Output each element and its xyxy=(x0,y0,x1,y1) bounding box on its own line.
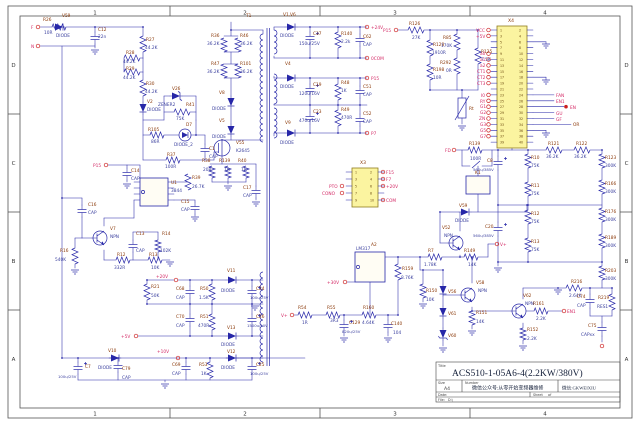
component-label: V7 xyxy=(110,226,116,232)
component-label: 44.2K xyxy=(145,89,158,95)
component-label: C62 xyxy=(363,34,372,40)
component-label: V9 xyxy=(285,120,291,126)
component-label: NPN xyxy=(110,234,119,240)
file-value: D:\ xyxy=(448,398,454,402)
net-port-label: V+ xyxy=(281,313,288,319)
component-label: CAP xyxy=(122,375,131,381)
component-label: 8.76K xyxy=(401,275,414,281)
component-label: R46 xyxy=(240,33,249,39)
component-label: 75K xyxy=(531,247,539,253)
component-label: CAPxx xyxy=(581,332,595,338)
component-label: A2 xyxy=(371,242,377,248)
component-label: CAP xyxy=(577,303,586,309)
component-label: 470R xyxy=(341,115,352,121)
component-label: 0R xyxy=(446,68,452,74)
pin-number: 33 xyxy=(500,123,504,127)
component-label: CAP xyxy=(363,119,372,125)
component-label: DIODE xyxy=(147,107,161,113)
component-label: 2.2K xyxy=(527,336,537,342)
component-label: R50 xyxy=(200,286,209,292)
component-label: R13 xyxy=(531,239,540,245)
contact-value: 微信:GKWEIXIU xyxy=(562,385,597,392)
component-label: U1 xyxy=(171,180,177,186)
component-label: R16 xyxy=(60,248,69,254)
component-label: 22n xyxy=(98,34,106,40)
number-value: 微信公众号:从零开始变频器维修 xyxy=(472,385,543,392)
component-label: R47 xyxy=(211,61,220,67)
net-port-label: CT3 xyxy=(477,81,486,87)
net-port-label: N xyxy=(31,44,34,50)
component-label: R139 xyxy=(469,141,480,147)
pin-number: 40 xyxy=(519,141,523,145)
zone-col-label: 3 xyxy=(393,412,397,418)
component-label: R140 xyxy=(341,31,352,37)
pin-number: 12 xyxy=(519,58,523,62)
component-label: C13 xyxy=(136,231,145,237)
component-label: V4 xyxy=(285,61,291,67)
pin-number: 11 xyxy=(500,58,504,62)
component-label: 100R xyxy=(470,156,481,162)
component-label: C16 xyxy=(88,202,97,208)
component-label: C12 xyxy=(98,27,107,33)
component-label: R28 xyxy=(126,50,135,56)
component-label: 36.2K xyxy=(207,41,220,47)
component-label: R198 xyxy=(433,67,444,73)
component-label: C75 xyxy=(588,323,597,329)
component-label: 3R3 xyxy=(330,318,339,324)
component-label: R149 xyxy=(464,248,475,254)
component-label: DIODE xyxy=(280,140,294,146)
file-label: File: xyxy=(438,398,445,402)
component-label: C14 xyxy=(131,168,140,174)
schematic-page: X412345678910111213141516171819202122232… xyxy=(0,0,640,424)
net-port-label: VCC xyxy=(476,28,485,34)
net-port-label: V+ xyxy=(500,242,507,248)
component-label: V8 xyxy=(219,90,225,96)
component-label: 44.2K xyxy=(123,59,136,65)
net-port-label: +5V xyxy=(476,34,485,40)
component-label: CAP xyxy=(88,210,97,216)
component-label: C79 xyxy=(122,366,131,372)
component-label: R105 xyxy=(148,127,159,133)
component-label: 100u/25V xyxy=(58,374,77,379)
component-label: 100u/25V xyxy=(250,371,269,376)
net-port-label: G7 xyxy=(480,134,486,140)
pin-number: 24 xyxy=(519,93,523,97)
pin-number: 27 xyxy=(500,105,504,109)
component-label: 4.64K xyxy=(362,320,375,326)
component-label: C129 xyxy=(349,320,360,326)
component-label: CAP xyxy=(243,193,252,199)
net-port-label: G2 xyxy=(480,110,486,116)
component-label: R48 xyxy=(341,80,350,86)
component-label: 86R xyxy=(151,139,159,145)
component-label: V56 xyxy=(448,289,457,295)
component-label: V13 xyxy=(227,325,236,331)
component-label: C68 xyxy=(176,286,185,292)
pin-number: 8 xyxy=(519,46,521,50)
component-label: R12 xyxy=(531,211,540,217)
pin-number: 1 xyxy=(355,171,357,175)
date-label: Date: xyxy=(438,393,447,397)
component-label: R12 xyxy=(117,252,126,258)
component-label: C140 xyxy=(391,321,402,327)
component-label: DIODE xyxy=(280,84,294,90)
component-label: 36.2K xyxy=(546,154,559,160)
component-label: DIODE xyxy=(455,218,469,224)
component-label: V60 xyxy=(448,333,457,339)
component-label: R292 xyxy=(440,60,451,66)
net-port-label: 0COM xyxy=(371,56,384,62)
component-label: R176 xyxy=(605,209,616,215)
component-label: 2.2k xyxy=(341,39,351,45)
pin-number: 23 xyxy=(500,93,504,97)
component-label: K1 xyxy=(475,170,481,176)
component-label: NPN xyxy=(478,288,487,294)
component-label: V58 xyxy=(476,280,485,286)
component-label: R49 xyxy=(341,107,350,113)
component-label: 300K xyxy=(605,243,616,249)
component-label: R123 xyxy=(605,155,616,161)
net-port-label: GU xyxy=(556,111,562,117)
component-label: 10R xyxy=(44,30,52,36)
component-label: 36.2K xyxy=(574,154,587,160)
component-label: 1K xyxy=(201,371,207,377)
component-label: R53 xyxy=(199,362,208,368)
component-label: CAP xyxy=(131,176,140,182)
size-value: A4 xyxy=(444,386,450,392)
zone-row-label: C xyxy=(12,161,16,167)
connector-name: X3 xyxy=(360,160,366,166)
component-label: Rt xyxy=(469,106,474,112)
component-label: R189 xyxy=(605,235,616,241)
of-label: of xyxy=(548,393,552,397)
component-label: DIODE xyxy=(56,33,70,39)
pin-number: 37 xyxy=(500,135,504,139)
component-label: R27 xyxy=(146,37,155,43)
pin-number: 15 xyxy=(500,70,504,74)
pin-number: 28 xyxy=(519,105,523,109)
component-label: R122 xyxy=(576,141,587,147)
component-label: C52 xyxy=(363,111,372,117)
component-label: 27K xyxy=(412,35,420,41)
net-port-label: G3 xyxy=(480,122,486,128)
net-port-label: CONO xyxy=(322,191,336,197)
zone-row-label: D xyxy=(624,63,628,69)
component-label: NPN xyxy=(444,233,453,239)
component-label: 1R xyxy=(302,320,308,326)
component-label: K2645 xyxy=(236,148,250,154)
component-label: R21 xyxy=(151,284,160,290)
component-label: R10 xyxy=(531,155,540,161)
component-label: 1910R xyxy=(432,50,446,56)
net-port-label: +5V xyxy=(121,334,130,340)
component-label: C7 xyxy=(85,364,91,370)
component-label: R36 xyxy=(211,33,220,39)
component-label: 300K xyxy=(605,189,616,195)
component-label: C51 xyxy=(363,84,372,90)
component-label: R160 xyxy=(363,305,374,311)
component-label: R39 xyxy=(192,175,201,181)
pin-number: 35 xyxy=(500,129,504,133)
component-label: C19 xyxy=(313,82,322,88)
component-label: 1K xyxy=(341,88,347,94)
component-label: DIODE xyxy=(280,33,294,39)
component-label: V52 xyxy=(442,225,451,231)
component-label: R26 xyxy=(43,17,52,23)
pin-number: 20 xyxy=(519,82,523,86)
component-label: 104 xyxy=(393,330,401,336)
net-port-label: CT1 xyxy=(477,69,486,75)
net-port-label: a1 xyxy=(480,57,486,63)
pin-number: 18 xyxy=(519,76,523,80)
component-label: C26 xyxy=(256,314,265,320)
pin-number: 1 xyxy=(500,29,502,33)
pin-number: 9 xyxy=(355,199,357,203)
component-label: 1.5K xyxy=(199,295,209,301)
pin-number: 38 xyxy=(519,135,523,139)
component-label: C17 xyxy=(243,185,252,191)
component-label: V55 xyxy=(236,140,245,146)
net-port-label: +20V xyxy=(386,184,398,190)
net-port-label: FD xyxy=(445,148,451,154)
component-label: V61 xyxy=(448,311,457,317)
net-port-label: +20V xyxy=(156,274,168,280)
component-label: R14 xyxy=(162,231,171,237)
component-label: 10R xyxy=(433,75,441,81)
component-label: 102K xyxy=(160,248,171,254)
net-port-label: +30V xyxy=(327,280,339,286)
pin-number: 3 xyxy=(355,178,357,182)
pin-number: 9 xyxy=(500,52,502,56)
zone-row-label: C xyxy=(625,161,629,167)
pin-number: 14 xyxy=(519,64,523,68)
component-label: 3844 xyxy=(171,188,182,194)
net-port-label: F7 xyxy=(386,177,391,183)
component-label: R7 xyxy=(428,248,434,254)
component-label: 560u/385V xyxy=(473,233,494,238)
component-label: 300K xyxy=(605,163,616,169)
zone-row-label: A xyxy=(625,357,629,363)
pin-number: 17 xyxy=(500,76,504,80)
pin-number: 31 xyxy=(500,117,504,121)
component-label: 36.2K xyxy=(207,69,220,75)
component-label: 100u/25V xyxy=(250,295,269,300)
component-label: CAP xyxy=(136,248,145,254)
net-port-label: G1 xyxy=(480,104,486,110)
pin-number: 4 xyxy=(519,34,521,38)
component-label: R101 xyxy=(240,61,251,67)
pin-number: 34 xyxy=(519,123,523,127)
component-label: C70 xyxy=(176,314,185,320)
pin-number: 16 xyxy=(519,70,523,74)
component-label: OR xyxy=(573,122,579,128)
component-label: 36.2K xyxy=(240,69,253,75)
net-port-label: GF xyxy=(556,117,562,123)
component-label: C25 xyxy=(256,362,265,368)
component-label: CAP xyxy=(363,92,372,98)
component-label: V59 xyxy=(62,13,71,19)
component-label: R121 xyxy=(548,141,559,147)
pin-number: 2 xyxy=(519,29,521,33)
component-label: LM317 xyxy=(356,246,371,252)
component-label: R219 xyxy=(598,295,609,301)
component-label: 44.2K xyxy=(123,75,136,81)
component-label: C1 xyxy=(209,146,215,152)
pin-number: 6 xyxy=(519,40,521,44)
component-label: R166 xyxy=(605,181,616,187)
sheet-label: Sheet xyxy=(533,393,543,397)
pin-number: 39 xyxy=(500,141,504,145)
component-label: R30 xyxy=(146,81,155,87)
component-label: R216 xyxy=(571,279,582,285)
net-port-label: ZN xyxy=(479,116,485,122)
pin-number: 36 xyxy=(519,129,523,133)
component-label: 44.2K xyxy=(145,45,158,51)
component-label: DIODE_2 xyxy=(174,142,193,148)
component-label: R41 xyxy=(186,102,195,108)
pin-number: 2 xyxy=(370,171,372,175)
component-label: R54 xyxy=(298,305,307,311)
component-label: DIODE xyxy=(221,288,235,294)
net-port-label: CT2 xyxy=(477,75,486,81)
component-label: CAP xyxy=(172,371,181,377)
pin-number: 30 xyxy=(519,111,523,115)
component-label: 75K xyxy=(531,191,539,197)
pin-number: 29 xyxy=(500,111,504,115)
component-label: 820u/25V xyxy=(342,329,361,334)
component-label: 14K xyxy=(468,262,476,268)
net-port-label: G5 xyxy=(480,128,486,134)
component-label: R161 xyxy=(533,301,544,307)
component-label: V59 xyxy=(459,203,468,209)
component-label: 50K xyxy=(151,293,159,299)
component-label: R13 xyxy=(149,252,158,258)
zone-row-label: D xyxy=(11,63,15,69)
zone-row-label: A xyxy=(12,357,16,363)
component-label: 36.2K xyxy=(240,41,253,47)
pin-number: 8 xyxy=(370,192,372,196)
component-label: DIODE xyxy=(212,134,226,140)
net-port-label: EN1 xyxy=(556,99,565,105)
pin-number: 7 xyxy=(500,46,502,50)
component-label: CAP xyxy=(176,295,185,301)
zone-col-label: 3 xyxy=(393,11,397,17)
pin-number: 6 xyxy=(370,185,372,189)
schematic-labels: X412345678910111213141516171819202122232… xyxy=(11,11,628,418)
net-port-label: +10V xyxy=(157,349,169,355)
pin-number: 32 xyxy=(519,117,523,121)
component-label: DIODE xyxy=(98,365,112,371)
component-label: 470R xyxy=(198,323,209,329)
pin-number: 5 xyxy=(500,40,502,44)
component-label: V1,V6 xyxy=(283,12,296,18)
component-label: 150u/25V xyxy=(299,41,320,47)
component-label: R40 xyxy=(238,158,247,164)
net-port-label: PTO xyxy=(329,184,338,190)
component-label: V10 xyxy=(108,348,117,354)
component-label: 75K xyxy=(176,116,184,122)
component-label: R139 xyxy=(219,158,230,164)
component-label: 470u/16V xyxy=(299,118,320,124)
net-port-label: P15 xyxy=(371,76,379,82)
net-port-label: F15 xyxy=(386,170,394,176)
net-port-label: P7 xyxy=(371,131,377,137)
component-label: C8 xyxy=(487,158,493,164)
component-label: 332R xyxy=(114,265,125,271)
component-label: R38 xyxy=(202,158,211,164)
number-label: Number xyxy=(465,381,479,385)
zone-row-label: B xyxy=(625,259,629,265)
component-label: C15 xyxy=(181,199,190,205)
component-label: RES1 xyxy=(597,304,608,310)
component-label: R55 xyxy=(327,305,336,311)
net-port-label: EN1 xyxy=(567,309,576,315)
schematic-canvas: X412345678910111213141516171819202122232… xyxy=(0,0,640,424)
component-label: R37 xyxy=(167,152,176,158)
pin-number: 10 xyxy=(519,52,523,56)
pin-number: 21 xyxy=(500,88,504,92)
pin-number: 26 xyxy=(519,99,523,103)
component-label: V26 xyxy=(172,86,181,92)
net-port-label: FAN xyxy=(556,93,564,99)
component-label: 75K xyxy=(531,219,539,225)
component-label: 75K xyxy=(531,163,539,169)
net-port-label: a0 xyxy=(480,51,486,57)
net-port-label: EN xyxy=(570,105,576,111)
component-label: 100R xyxy=(165,164,176,170)
title-block: Title ACS510-1-05A6-4(2.2KW/380V) Size A… xyxy=(436,362,620,402)
pin-number: 13 xyxy=(500,64,504,68)
pin-number: 7 xyxy=(355,192,357,196)
component-label: V5 xyxy=(219,118,225,124)
schematic-title: ACS510-1-05A6-4(2.2KW/380V) xyxy=(452,368,583,379)
zone-row-label: B xyxy=(12,259,16,265)
zone-col-label: 4 xyxy=(543,11,547,17)
net-port-label: +24V xyxy=(371,25,383,31)
pin-number: 25 xyxy=(500,99,504,103)
component-label: C69 xyxy=(172,362,181,368)
component-label: R126 xyxy=(409,21,420,27)
component-label: D7 xyxy=(186,122,192,128)
component-label: CAP xyxy=(176,323,185,329)
component-label: R150 xyxy=(426,288,437,294)
component-label: C23 xyxy=(313,109,322,115)
component-label: CAP xyxy=(181,207,190,213)
component-label: 14K xyxy=(476,319,484,325)
component-label: 1.78K xyxy=(424,262,437,268)
component-label: V62 xyxy=(523,293,532,299)
net-port-label: I0 xyxy=(481,93,485,99)
component-label: DIODE xyxy=(212,106,226,112)
component-label: 2.2K xyxy=(536,316,546,322)
net-port-label: a2 xyxy=(480,63,486,69)
net-port-label: F xyxy=(31,25,34,31)
component-label: T1 xyxy=(245,13,252,19)
component-label: V12 xyxy=(227,349,236,355)
component-label: 20R xyxy=(203,167,211,173)
component-label: 1R xyxy=(241,167,247,173)
pin-number: 5 xyxy=(355,185,357,189)
component-label: 10K xyxy=(151,265,159,271)
component-label: DIODE xyxy=(221,365,235,371)
zone-col-label: 1 xyxy=(93,11,97,17)
component-label: R203 xyxy=(605,268,616,274)
pin-number: 22 xyxy=(519,88,523,92)
zone-col-label: 2 xyxy=(243,412,247,418)
component-label: 300K xyxy=(605,276,616,282)
zone-col-label: 1 xyxy=(93,412,97,418)
